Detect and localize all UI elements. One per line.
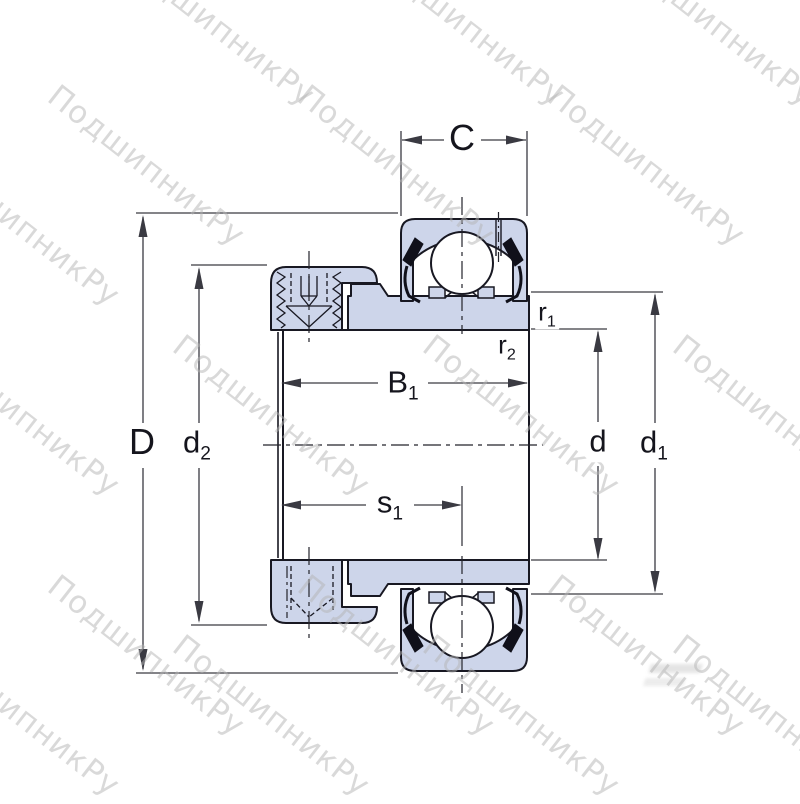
dim-label-s1: s1: [374, 486, 406, 523]
dim-label-C: C: [446, 120, 478, 163]
dim-label-D: D: [126, 424, 158, 467]
page: { "page": { "background": "#ffffff", "de…: [0, 0, 800, 800]
dim-label-r1: r1: [535, 298, 559, 329]
dim-label-r2: r2: [495, 331, 519, 362]
inner-ring-flange-bottom: [348, 560, 529, 596]
dim-label-d: d: [586, 425, 609, 462]
dim-label-d2: d2: [180, 426, 214, 463]
dim-s1: [281, 486, 462, 546]
dim-label-d1: d1: [637, 426, 671, 463]
dim-label-B1: B1: [384, 366, 421, 403]
